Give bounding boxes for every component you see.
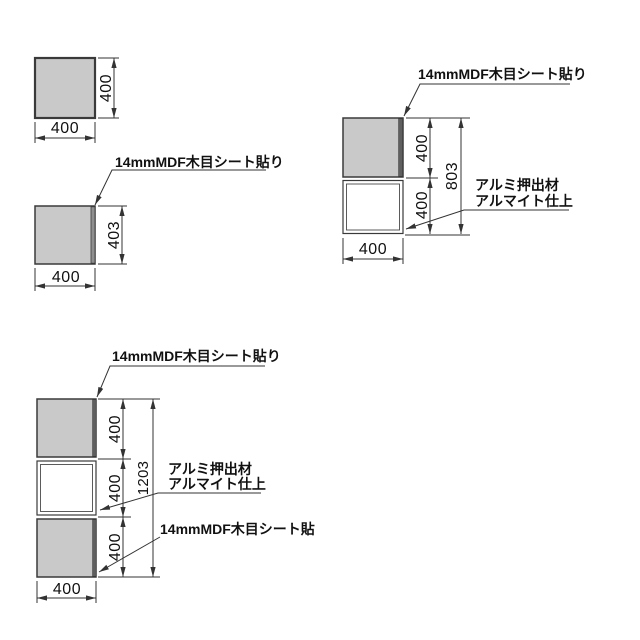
- view-single-panel: 400 400: [35, 58, 119, 143]
- mdf-edge-strip: [93, 400, 97, 457]
- callout-aluminum-line2: アルマイト仕上: [475, 193, 573, 209]
- mdf-edge-strip: [399, 119, 403, 177]
- dimension-value-width: 400: [53, 581, 81, 598]
- callout-aluminum-line1: アルミ押出材: [475, 177, 559, 193]
- callout-aluminum-line1: アルミ押出材: [168, 461, 252, 477]
- dimension-value-width: 400: [52, 269, 80, 286]
- aluminum-frame-cell: [343, 181, 403, 234]
- view-single-panel-labeled: 14mmMDF木目シート貼り 403 400: [35, 154, 284, 291]
- callout-mdf-label-top: 14mmMDF木目シート貼り: [112, 348, 281, 364]
- dimension-value-total: 1203: [135, 461, 152, 496]
- mdf-panel-face-bottom: [37, 519, 96, 577]
- drawing-canvas: 400 400 14mmMDF木目シート貼り 403 400 14mmMDF木目…: [0, 0, 640, 640]
- dimension-value-seg-top: 400: [414, 134, 431, 162]
- leader-line-mdf: [95, 170, 266, 205]
- mdf-panel-face: [343, 118, 403, 177]
- dimension-value-width: 400: [359, 241, 387, 258]
- leader-line-aluminum: [100, 493, 261, 510]
- dimension-value-height: 403: [106, 221, 123, 249]
- mdf-panel-face: [35, 58, 95, 118]
- technical-drawing-svg: 400 400 14mmMDF木目シート貼り 403 400 14mmMDF木目…: [0, 0, 640, 640]
- aluminum-frame-cell: [37, 461, 96, 515]
- mdf-panel-face-top: [37, 399, 96, 457]
- view-three-tier-unit: 14mmMDF木目シート貼り アルミ押出材 アルマイト仕上 14mmMDF木目シ…: [37, 348, 315, 603]
- callout-mdf-label: 14mmMDF木目シート貼り: [418, 66, 587, 82]
- dimension-value-width: 400: [51, 120, 79, 137]
- dimension-value-seg-bottom: 400: [107, 533, 124, 561]
- callout-mdf-label: 14mmMDF木目シート貼り: [115, 154, 284, 170]
- leader-line-mdf: [404, 84, 570, 116]
- mdf-edge-strip: [91, 207, 95, 263]
- mdf-panel-face: [35, 206, 95, 264]
- dimension-value-total: 803: [444, 162, 461, 190]
- dimension-value-seg-bottom: 400: [414, 191, 431, 219]
- callout-mdf-label-bottom: 14mmMDF木目シート貼: [160, 521, 315, 537]
- leader-line-mdf-top: [97, 366, 265, 397]
- dimension-value-seg-middle: 400: [107, 474, 124, 502]
- callout-aluminum-line2: アルマイト仕上: [168, 476, 266, 492]
- mdf-edge-strip: [93, 520, 97, 577]
- dimension-value-seg-top: 400: [107, 415, 124, 443]
- dimension-value-height: 400: [98, 74, 115, 102]
- view-two-tier-unit: 14mmMDF木目シート貼り アルミ押出材 アルマイト仕上 400 400 80…: [343, 66, 587, 264]
